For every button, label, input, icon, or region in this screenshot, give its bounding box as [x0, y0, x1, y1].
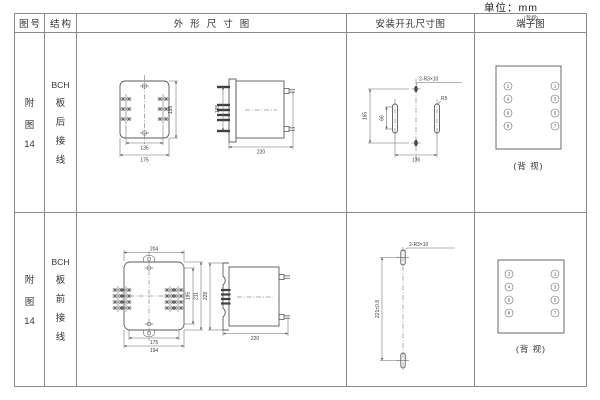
- structure-line: 线: [56, 152, 66, 166]
- fig-char: 图: [25, 294, 35, 308]
- dim-front-inner-width: 136: [140, 146, 149, 152]
- fig-char: 附: [25, 95, 35, 109]
- cell-figure-no-row2: 附 图 14: [15, 213, 45, 386]
- cell-outline-row2: 204 195 211 175 194: [77, 213, 347, 386]
- terminal-number: 1: [554, 84, 557, 89]
- terminal-number: 6: [508, 298, 511, 303]
- cell-outline-row1: 195 136 175: [77, 33, 347, 213]
- side-view: [217, 79, 295, 142]
- header-terminal-diagram: (背视) 端子图: [475, 14, 586, 33]
- dim-front-inner-height: 195: [186, 292, 192, 301]
- cell-structure-row2: BCH 板 前 接 线: [45, 213, 77, 386]
- install-holes: [393, 79, 440, 159]
- dim-front-top-width: 204: [150, 247, 159, 253]
- label-hole-spec: 2-R3×10: [409, 242, 429, 248]
- header-fig-no: 图号: [15, 14, 45, 33]
- structure-line: 线: [56, 329, 66, 343]
- header-structure: 结构: [45, 14, 77, 33]
- side-view-dims: 165 220: [215, 87, 293, 156]
- label-hole-spec: 2-R3×10: [419, 77, 439, 83]
- terminal-number: 3: [554, 97, 557, 102]
- terminal-drawing-row2: 2 4 6 8 1 3 5 7 (背 视): [475, 213, 585, 385]
- terminal-number: 1: [554, 272, 557, 277]
- terminal-number: 6: [507, 111, 510, 116]
- dim-front-inner-width: 175: [150, 340, 159, 346]
- terminal-caption: (背 视): [513, 161, 543, 171]
- dim-front-outer-width: 175: [140, 158, 149, 164]
- outline-drawing-row2: 204 195 211 175 194: [77, 213, 346, 385]
- side-view-dims: 228 220: [203, 263, 288, 342]
- terminal-caption: (背 视): [516, 344, 546, 354]
- dim-total-height: 165: [363, 112, 369, 121]
- terminal-number: 5: [554, 111, 557, 116]
- front-view-dims: 204 195 211 175 194: [124, 247, 203, 355]
- structure-line: 前: [56, 291, 66, 305]
- structure-line: 板: [56, 272, 66, 286]
- header-terminal-note: (背视): [523, 17, 537, 22]
- spec-table: 图号 结构 外形尺寸图 安装开孔尺寸图 (背视) 端子图 附 图 14 BCH …: [14, 13, 587, 387]
- front-view: [120, 75, 169, 144]
- structure-line: 接: [56, 133, 66, 147]
- dim-hole-spacing: 136: [412, 158, 421, 164]
- fig-char: 14: [24, 139, 35, 150]
- terminal-number: 7: [554, 311, 557, 316]
- label-slot-radius: R5: [441, 96, 448, 102]
- dim-side-depth: 220: [257, 150, 266, 156]
- fig-char: 图: [25, 117, 35, 131]
- terminal-box: 2 4 6 8 1 3 5 7: [496, 66, 561, 149]
- fig-char: 14: [24, 316, 35, 327]
- dim-vertical-spacing: 221±0.8: [375, 300, 381, 318]
- dim-front-outer-width: 194: [150, 348, 159, 354]
- structure-line: 接: [56, 310, 66, 324]
- terminal-drawing-row1: 2 4 6 8 1 3 5 7 (背 视): [475, 33, 585, 212]
- header-outline-dims: 外形尺寸图: [77, 14, 347, 33]
- dim-slot-height: 66: [380, 115, 386, 121]
- dim-side-depth: 220: [251, 336, 260, 342]
- dim-front-outer-height: 211: [194, 292, 200, 300]
- structure-line: BCH: [52, 257, 70, 267]
- cell-install-row1: 66 165 136 2-R3×10 R5: [347, 33, 475, 213]
- structure-line: 后: [56, 114, 66, 128]
- header-install-dims: 安装开孔尺寸图: [347, 14, 475, 33]
- terminal-number: 2: [508, 272, 511, 277]
- side-view: [221, 263, 290, 330]
- cell-figure-no-row1: 附 图 14: [15, 33, 45, 213]
- cell-terminal-row1: 2 4 6 8 1 3 5 7 (背 视): [475, 33, 586, 213]
- cell-structure-row1: BCH 板 后 接 线: [45, 33, 77, 213]
- terminal-number: 2: [507, 84, 510, 89]
- install-holes: [397, 247, 409, 372]
- install-dims: 221±0.8 2-R3×10: [375, 242, 455, 361]
- cell-terminal-row2: 2 4 6 8 1 3 5 7 (背 视): [475, 213, 586, 386]
- cell-install-row2: 221±0.8 2-R3×10: [347, 213, 475, 386]
- terminal-number: 4: [508, 285, 511, 290]
- install-drawing-row1: 66 165 136 2-R3×10 R5: [347, 33, 474, 212]
- dim-side-height: 228: [203, 292, 209, 301]
- dim-side-height: 165: [215, 105, 221, 114]
- front-view: [113, 251, 185, 341]
- terminal-number: 8: [508, 311, 511, 316]
- terminal-number: 7: [554, 124, 557, 129]
- outline-drawing-row1: 195 136 175: [77, 33, 346, 212]
- terminal-number: 3: [554, 285, 557, 290]
- terminal-number: 4: [507, 97, 510, 102]
- terminal-number: 8: [507, 124, 510, 129]
- dim-front-height: 195: [168, 106, 174, 115]
- structure-line: BCH: [52, 80, 70, 90]
- fig-char: 附: [25, 272, 35, 286]
- install-drawing-row2: 221±0.8 2-R3×10: [347, 213, 474, 385]
- terminal-number: 5: [554, 298, 557, 303]
- install-dims: 66 165 136 2-R3×10 R5: [363, 77, 463, 164]
- page: 单位：mm 图号 结构 外形尺寸图 安装开孔尺寸图 (背视) 端子图 附 图 1…: [0, 0, 600, 400]
- terminal-box: 2 4 6 8 1 3 5 7: [498, 260, 564, 333]
- structure-line: 板: [56, 95, 66, 109]
